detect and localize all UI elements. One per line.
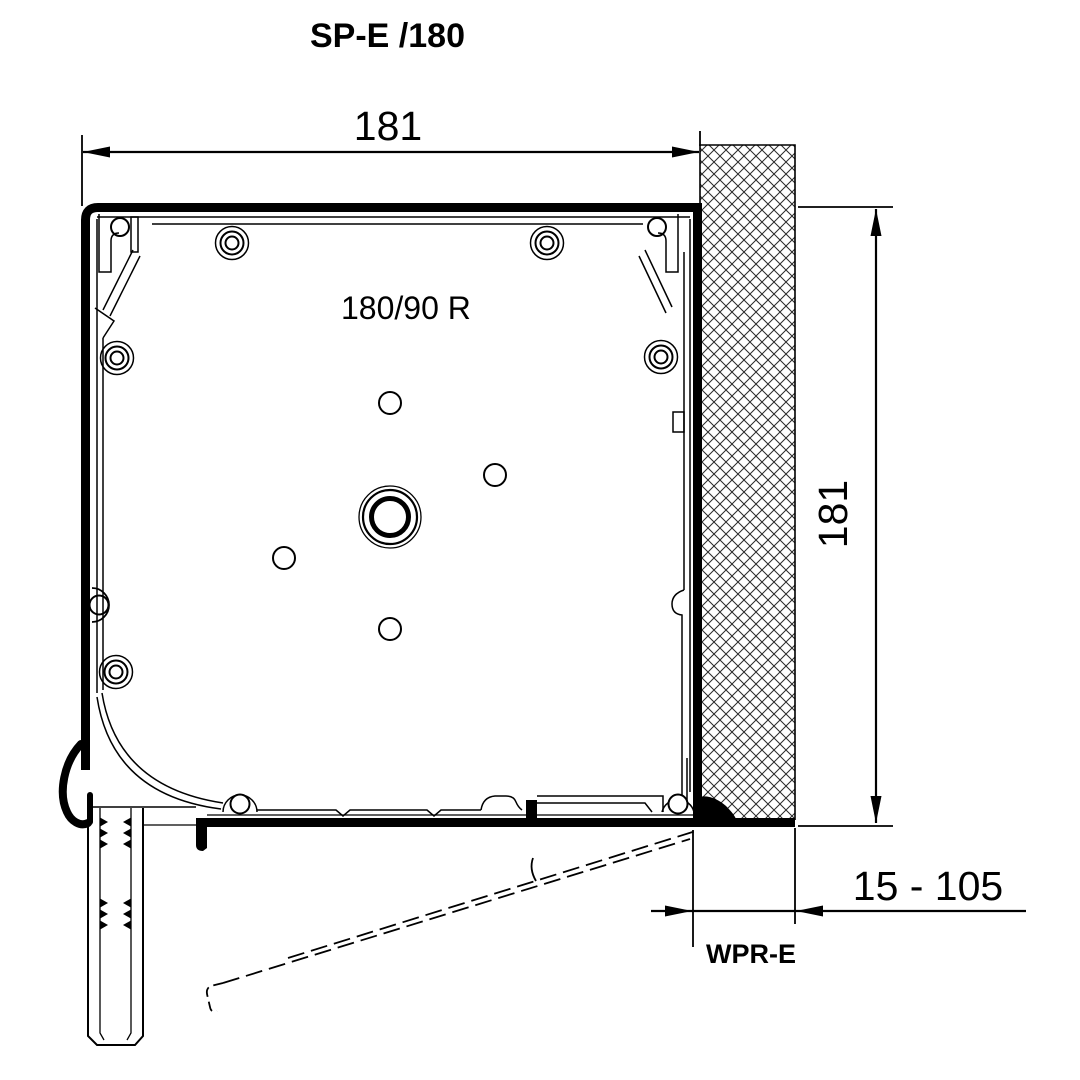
lid-seal-block (526, 800, 537, 818)
guide-rail (88, 808, 143, 1045)
dimension-right-value: 181 (810, 480, 856, 548)
dimension-top-value: 181 (354, 103, 422, 149)
dimension-depth-value: 15 - 105 (853, 863, 1003, 909)
dimension-depth: 15 - 105 WPR-E (651, 828, 1026, 969)
arrowhead-up (871, 209, 882, 236)
arrowhead-right (672, 147, 699, 158)
dimension-right-height: 181 (798, 207, 893, 826)
technical-drawing-page: SP-E /180 181 181 (0, 0, 1080, 1080)
slat-stop-tab (532, 858, 536, 881)
end-slat-dashed (207, 830, 699, 1012)
roller-shutter-section-drawing: SP-E /180 181 181 (0, 0, 1080, 1080)
drawing-title: SP-E /180 (310, 17, 465, 55)
adapter-profile-label: WPR-E (706, 939, 796, 969)
lid-left-hook (196, 827, 207, 851)
arrowhead-down (871, 796, 882, 823)
box-model-label: 180/90 R (341, 290, 471, 326)
arrowhead-left (796, 906, 823, 917)
wall-section (700, 145, 795, 820)
brush-seals (100, 818, 131, 929)
arrowhead-right (665, 906, 692, 917)
lid-screw (669, 795, 688, 814)
wall-hatch (700, 145, 795, 820)
dimension-top-width: 181 (82, 103, 700, 206)
lid-screw (231, 795, 250, 814)
shutter-box: 180/90 R (86, 208, 698, 821)
arrowhead-left (83, 147, 110, 158)
